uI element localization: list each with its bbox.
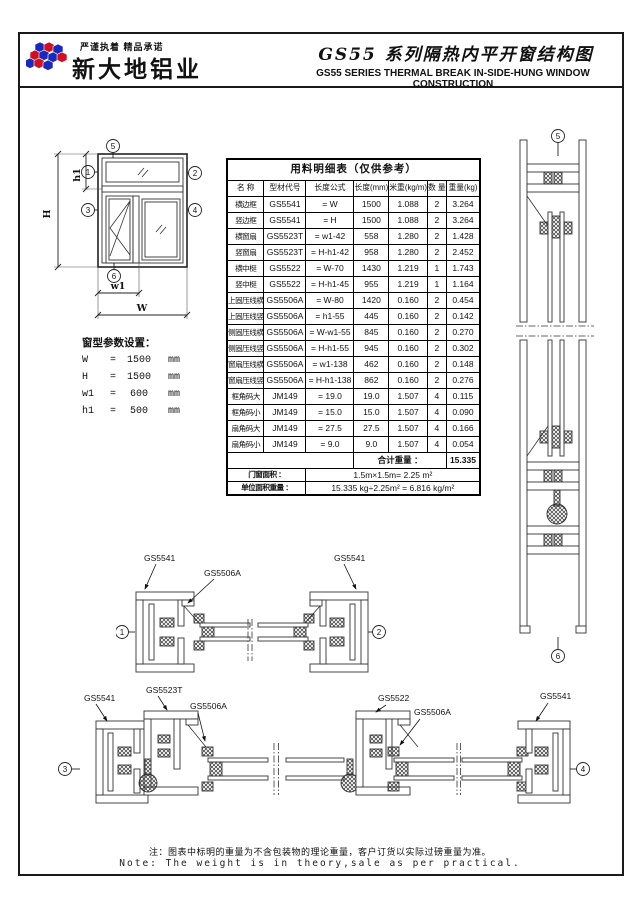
table-cell: 1500 [354,197,389,213]
table-cell: 845 [354,325,389,341]
table-cell: = 15.0 [306,405,354,421]
table-cell: 2 [427,373,446,389]
table-cell: 1.428 [446,229,480,245]
section-ref-1: 1 [120,628,125,637]
table-body: 横边框GS5541= W15001.08823.264竖边框GS5541= H1… [227,197,480,453]
param-row-W: W = 1500 mm [82,355,180,366]
table-cell: = h1-55 [306,309,354,325]
table-cell: 1.219 [389,277,428,293]
table-row: 侧固压线横GS5506A= W-w1-558450.16020.270 [227,325,480,341]
table-cell: 窗扇压线横 [227,357,264,373]
table-cell: 955 [354,277,389,293]
table-cell: 3.264 [446,197,480,213]
table-cell: GS5522 [264,277,306,293]
area-value: 1.5m×1.5m= 2.25 m² [306,469,480,482]
table-cell: 2 [427,309,446,325]
col-header: 重量(kg) [446,181,480,197]
table-cell: GS5506A [264,357,306,373]
table-cell: JM149 [264,405,306,421]
dim-label-W: W [136,303,148,314]
table-cell: 1.507 [389,437,428,453]
col-header: 型材代号 [264,181,306,197]
table-cell: 1.280 [389,229,428,245]
dim-label-H: H [42,209,53,218]
col-header: 米重(kg/m) [389,181,428,197]
table-cell: 862 [354,373,389,389]
table-cell: GS5506A [264,293,306,309]
table-cell: 0.142 [446,309,480,325]
section-ref-4: 4 [581,765,586,774]
drawing-sheet: 严谨执着 精品承诺 新大地铝业 GS55 系列隔热内平开窗结构图 GS55 SE… [0,0,640,906]
table-cell: 558 [354,229,389,245]
total-label: 合计重量 ： [354,453,446,469]
table-cell: 横边框 [227,197,264,213]
table-cell: GS5522 [264,261,306,277]
table-cell: 4 [427,421,446,437]
table-cell: 1.219 [389,261,428,277]
table-cell: 框角码大 [227,389,264,405]
table-row: 横边框GS5541= W15001.08823.264 [227,197,480,213]
table-row: 横窗扇GS5523T= w1-425581.28021.428 [227,229,480,245]
table-header-row: 名 称 型材代号 长度公式 长度(mm) 米重(kg/m) 数 量 重量(kg) [227,181,480,197]
unit-weight-value: 15.335 kg÷2.25m² = 6.816 kg/m² [306,482,480,496]
table-cell: = H-h1-138 [306,373,354,389]
table-cell: 2 [427,293,446,309]
table-cell: = 27.5 [306,421,354,437]
table-cell: 1.507 [389,389,428,405]
table-cell: 框角码小 [227,405,264,421]
table-cell: 4 [427,405,446,421]
table-cell: 0.160 [389,373,428,389]
profile-label: GS5522 [378,693,409,703]
section-ref-2: 2 [377,628,382,637]
table-row: 窗扇压线竖GS5506A= H-h1-1388620.16020.276 [227,373,480,389]
profile-label: GS5506A [414,707,451,717]
table-cell: = 19.0 [306,389,354,405]
profile-label: GS5541 [84,693,115,703]
param-row-h1: h1 = 500 mm [82,406,180,417]
table-cell: 1500 [354,213,389,229]
area-row: 门窗面积 ： 1.5m×1.5m= 2.25 m² [227,469,480,482]
table-cell: 1430 [354,261,389,277]
unit-weight-row: 单位面积重量 ： 15.335 kg÷2.25m² = 6.816 kg/m² [227,482,480,496]
table-cell: 窗扇压线竖 [227,373,264,389]
col-header: 名 称 [227,181,264,197]
table-cell: 2 [427,245,446,261]
table-cell: 0.148 [446,357,480,373]
table-title: 用料明细表（仅供参考） [227,159,480,181]
table-row: 上固压线竖GS5506A= h1-554450.16020.142 [227,309,480,325]
table-cell: 0.090 [446,405,480,421]
table-cell: 2.452 [446,245,480,261]
table-cell: GS5506A [264,373,306,389]
table-cell: 0.160 [389,309,428,325]
table-row: 横中梃GS5522= W-7014301.21911.743 [227,261,480,277]
table-cell: 0.160 [389,325,428,341]
col-header: 长度公式 [306,181,354,197]
table-cell: 侧固压线横 [227,325,264,341]
table-cell: = w1-138 [306,357,354,373]
table-cell: = H-h1-42 [306,245,354,261]
section-ref-2: 2 [193,169,198,178]
param-row-H: H = 1500 mm [82,372,180,383]
bottom-section-drawing: 3 4 GS5541 GS5523T GS5506A GS5522 [40,683,605,825]
sheet-title-cn: GS55 系列隔热内平开窗结构图 [300,40,612,65]
table-row: 扇角码大JM149= 27.527.51.50740.166 [227,421,480,437]
table-cell: GS5523T [264,245,306,261]
table-cell: = H-h1-45 [306,277,354,293]
table-cell: 2 [427,197,446,213]
table-cell: GS5506A [264,341,306,357]
table-cell: 0.160 [389,293,428,309]
table-row: 侧固压线竖GS5506A= H-h1-559450.16020.302 [227,341,480,357]
table-cell: 扇角码大 [227,421,264,437]
table-cell: GS5523T [264,229,306,245]
section-ref-3: 3 [63,765,68,774]
table-cell: 0.160 [389,341,428,357]
section-ref-6: 6 [112,272,117,281]
table-cell: 1.088 [389,213,428,229]
table-cell: 上固压线横 [227,293,264,309]
profile-label: GS5541 [334,553,365,563]
table-cell: 19.0 [354,389,389,405]
table-cell: JM149 [264,421,306,437]
table-cell: GS5506A [264,325,306,341]
table-cell: 3.264 [446,213,480,229]
table-row: 竖窗扇GS5523T= H-h1-429581.28022.452 [227,245,480,261]
table-cell: 竖边框 [227,213,264,229]
table-cell: 958 [354,245,389,261]
table-row: 上固压线横GS5506A= W-8014200.16020.454 [227,293,480,309]
profile-label: GS5506A [190,701,227,711]
table-cell: = W [306,197,354,213]
table-cell: 横窗扇 [227,229,264,245]
table-cell: 4 [427,437,446,453]
parameters-title: 窗型参数设置： [82,335,180,350]
unit-weight-label: 单位面积重量 ： [227,482,306,496]
table-cell: = w1-42 [306,229,354,245]
casement-opening-symbol [110,201,130,256]
table-cell: 竖中梃 [227,277,264,293]
dim-label-w1: w1 [110,281,126,292]
vertical-section-drawing: 5 6 [514,126,598,678]
table-cell: 1420 [354,293,389,309]
table-cell: = W-w1-55 [306,325,354,341]
table-row: 窗扇压线横GS5506A= w1-1384620.16020.148 [227,357,480,373]
table-cell: 扇角码小 [227,437,264,453]
table-cell: = W-70 [306,261,354,277]
table-cell: 竖窗扇 [227,245,264,261]
table-row: 竖中梃GS5522= H-h1-459551.21911.164 [227,277,480,293]
window-elevation-diagram: H h1 w1 W 5 1 2 3 4 6 [38,122,230,334]
footer-note-cn: 注：图表中标明的重量为不含包装物的理论重量，客户订货以实际过磅重量为准。 [0,845,640,858]
table-cell: 上固压线竖 [227,309,264,325]
sheet-title-en: GS55 SERIES THERMAL BREAK IN-SIDE-HUNG W… [292,68,614,90]
section-ref-1: 1 [86,168,91,177]
table-cell: 4 [427,389,446,405]
table-cell: 0.054 [446,437,480,453]
middle-section-drawing: 1 2 GS5541 GS5506A GS5541 [116,545,406,680]
section-ref-5: 5 [111,142,116,151]
table-cell: 0.115 [446,389,480,405]
table-cell: 462 [354,357,389,373]
table-cell: 1.088 [389,197,428,213]
total-value: 15.335 [446,453,480,469]
table-cell: 2 [427,229,446,245]
table-cell: JM149 [264,389,306,405]
table-cell: 9.0 [354,437,389,453]
section-ref-4: 4 [193,206,198,215]
table-cell: = H [306,213,354,229]
table-cell: 横中梃 [227,261,264,277]
table-cell: 0.302 [446,341,480,357]
company-logo-icon [26,40,68,78]
table-cell: 0.454 [446,293,480,309]
table-cell: 侧固压线竖 [227,341,264,357]
materials-table: 用料明细表（仅供参考） 名 称 型材代号 长度公式 长度(mm) 米重(kg/m… [226,158,481,496]
window-parameters: 窗型参数设置： W = 1500 mm H = 1500 mm w1 = 600… [82,335,180,423]
table-row: 竖边框GS5541= H15001.08823.264 [227,213,480,229]
table-row: 框角码小JM149= 15.015.01.50740.090 [227,405,480,421]
table-cell: 2 [427,213,446,229]
table-cell: = 9.0 [306,437,354,453]
table-cell: = W-80 [306,293,354,309]
section-ref-6: 6 [556,652,561,661]
table-cell: GS5541 [264,197,306,213]
blank-cell [227,453,354,469]
table-cell: 27.5 [354,421,389,437]
table-cell: 1 [427,261,446,277]
table-cell: 445 [354,309,389,325]
table-cell: JM149 [264,437,306,453]
param-row-w1: w1 = 600 mm [82,389,180,400]
table-cell: 945 [354,341,389,357]
profile-label: GS5523T [146,685,182,695]
table-cell: 0.166 [446,421,480,437]
table-cell: GS5541 [264,213,306,229]
profile-label: GS5541 [144,553,175,563]
area-label: 门窗面积 ： [227,469,306,482]
table-cell: 2 [427,325,446,341]
table-cell: = H-h1-55 [306,341,354,357]
col-header: 长度(mm) [354,181,389,197]
table-row: 框角码大JM149= 19.019.01.50740.115 [227,389,480,405]
table-cell: 0.160 [389,357,428,373]
table-cell: 2 [427,357,446,373]
table-cell: 0.276 [446,373,480,389]
col-header: 数 量 [427,181,446,197]
company-name: 新大地铝业 [72,50,202,84]
table-cell: GS5506A [264,309,306,325]
table-cell: 1.507 [389,405,428,421]
table-cell: 1 [427,277,446,293]
table-cell: 1.164 [446,277,480,293]
table-cell: 1.280 [389,245,428,261]
table-cell: 1.743 [446,261,480,277]
section-ref-3: 3 [86,206,91,215]
section-ref-5: 5 [556,132,561,141]
table-row: 扇角码小JM149= 9.09.01.50740.054 [227,437,480,453]
profile-label: GS5506A [204,568,241,578]
profile-label: GS5541 [540,691,571,701]
footer-note-en: Note: The weight is in theory,sale as pe… [0,858,640,869]
table-cell: 0.270 [446,325,480,341]
total-row: 合计重量 ： 15.335 [227,453,480,469]
table-cell: 15.0 [354,405,389,421]
table-cell: 2 [427,341,446,357]
table-cell: 1.507 [389,421,428,437]
